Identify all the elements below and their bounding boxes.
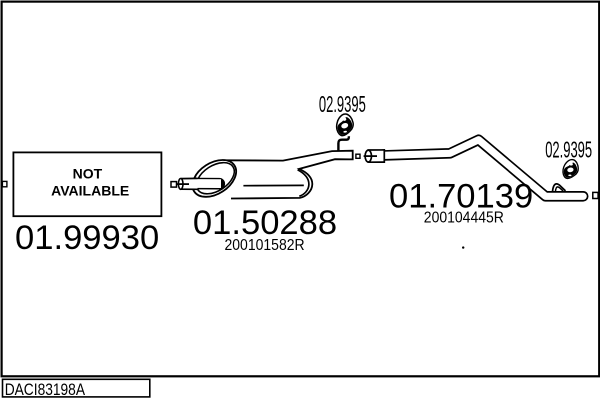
svg-text:200104445R: 200104445R: [424, 209, 504, 227]
svg-text:AVAILABLE: AVAILABLE: [51, 183, 129, 199]
svg-text:DACI83198A: DACI83198A: [5, 381, 86, 399]
svg-text:200101582R: 200101582R: [225, 236, 305, 254]
svg-text:02.9395: 02.9395: [545, 138, 592, 164]
svg-text:01.99930: 01.99930: [15, 219, 159, 257]
svg-text:02.9395: 02.9395: [319, 92, 366, 118]
svg-text:NOT: NOT: [73, 165, 103, 181]
